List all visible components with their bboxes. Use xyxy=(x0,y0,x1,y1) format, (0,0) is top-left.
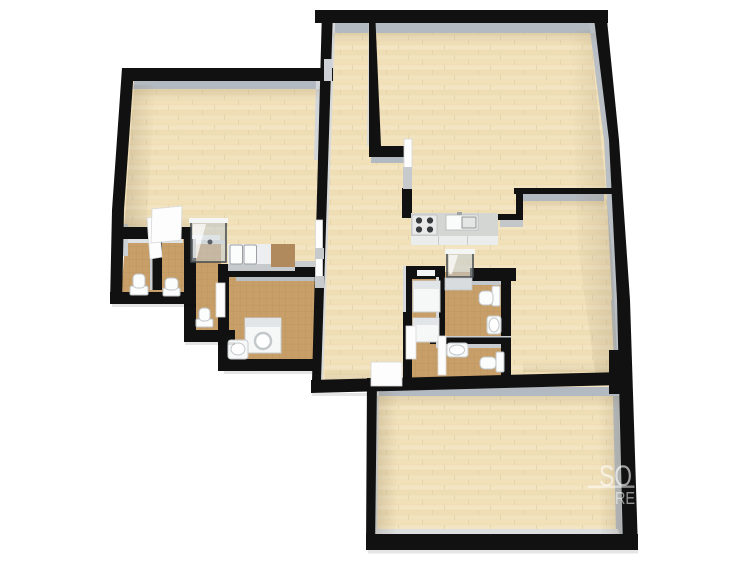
svg-text:RE: RE xyxy=(615,488,635,508)
